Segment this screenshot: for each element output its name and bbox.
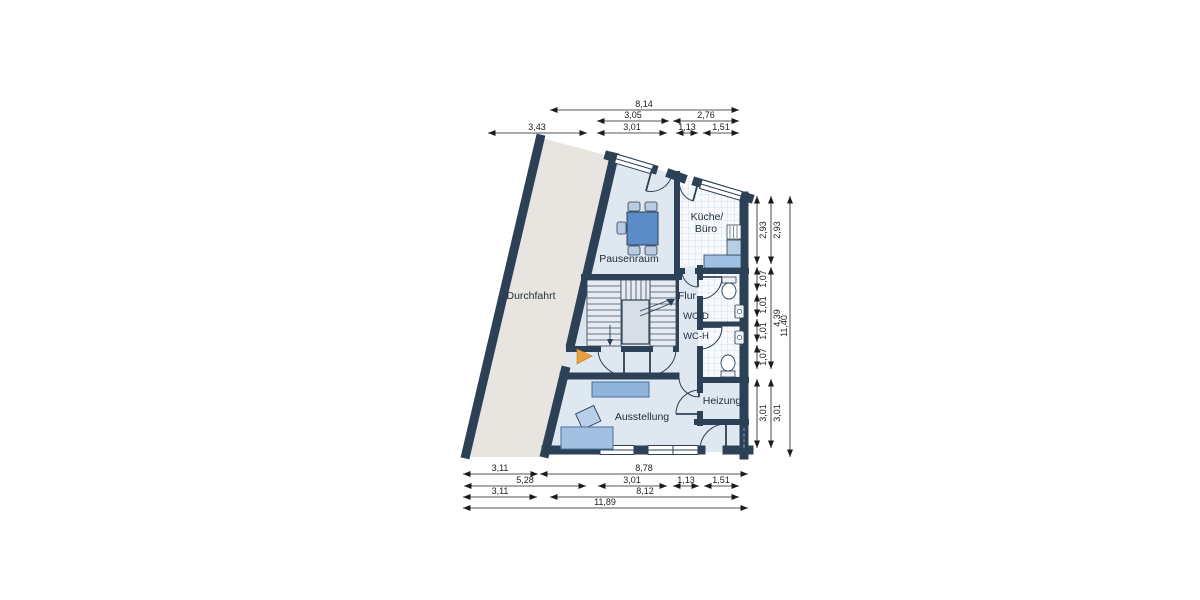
dimension-label: 8,12 [636, 486, 654, 496]
dimension-label: 1,51 [712, 475, 730, 485]
dimension-label: 1,07 [758, 270, 768, 288]
dimension-label: 3,01 [623, 475, 641, 485]
dimension-label: 3,11 [492, 486, 509, 496]
dimension-label: 3,01 [623, 122, 641, 132]
table-icon [627, 212, 658, 245]
dimension-label: 1,01 [758, 322, 768, 340]
dimension-label: 1,13 [678, 122, 696, 132]
kitchen-counter [704, 255, 741, 268]
dimension-label: 1,13 [677, 475, 695, 485]
kitchen-appliance [727, 240, 741, 255]
dimension-label: 2,93 [772, 221, 782, 239]
dimension-label: 5,28 [516, 475, 534, 485]
dimension-label: 1,51 [712, 122, 730, 132]
room-label-pausenraum: Pausenraum [599, 253, 659, 265]
dimension-label: 3,43 [528, 122, 546, 132]
window-ausstellung-2 [648, 446, 698, 455]
dimension-label: 1,01 [758, 296, 768, 314]
room-label-heizung: Heizung [703, 395, 742, 407]
dimension-label: 11,40 [779, 315, 789, 337]
stove-icon [727, 225, 741, 239]
dimension-label: 1,07 [758, 348, 768, 366]
dimension-label: 3,01 [758, 404, 768, 422]
dimension-label: 3,01 [772, 404, 782, 422]
floor-plan-canvas: Durchfahrt Pausenraum Küche/ Büro Flur W… [0, 0, 1200, 600]
room-label-durchfahrt: Durchfahrt [506, 290, 555, 302]
room-label-wc-d: WC-D [683, 311, 709, 322]
room-label-ausstellung: Ausstellung [615, 411, 669, 423]
dimension-label: 8,78 [635, 463, 653, 473]
sink-icon [735, 305, 744, 318]
dimension-label: 11,89 [594, 497, 616, 507]
room-label-wc-h: WC-H [683, 331, 709, 342]
stairs-icon [587, 280, 676, 346]
display-table-large [561, 427, 613, 449]
elevator-shaft [622, 300, 649, 344]
toilet-icon [722, 277, 736, 299]
dimension-label: 3,05 [624, 110, 642, 120]
dimension-label: 2,76 [697, 110, 715, 120]
toilet-icon [721, 355, 735, 377]
sink-icon [735, 331, 744, 344]
floor-plan-drawing: Durchfahrt Pausenraum Küche/ Büro Flur W… [0, 0, 1200, 600]
dimension-label: 8,14 [635, 99, 653, 109]
dimension-label: 3,11 [492, 463, 509, 473]
room-label-flur: Flur [678, 290, 697, 302]
sideboard-icon [592, 382, 649, 397]
room-label-kueche-line1: Küche/ [691, 211, 724, 223]
dimension-label: 2,93 [758, 221, 768, 239]
room-label-kueche-line2: Büro [695, 223, 717, 235]
